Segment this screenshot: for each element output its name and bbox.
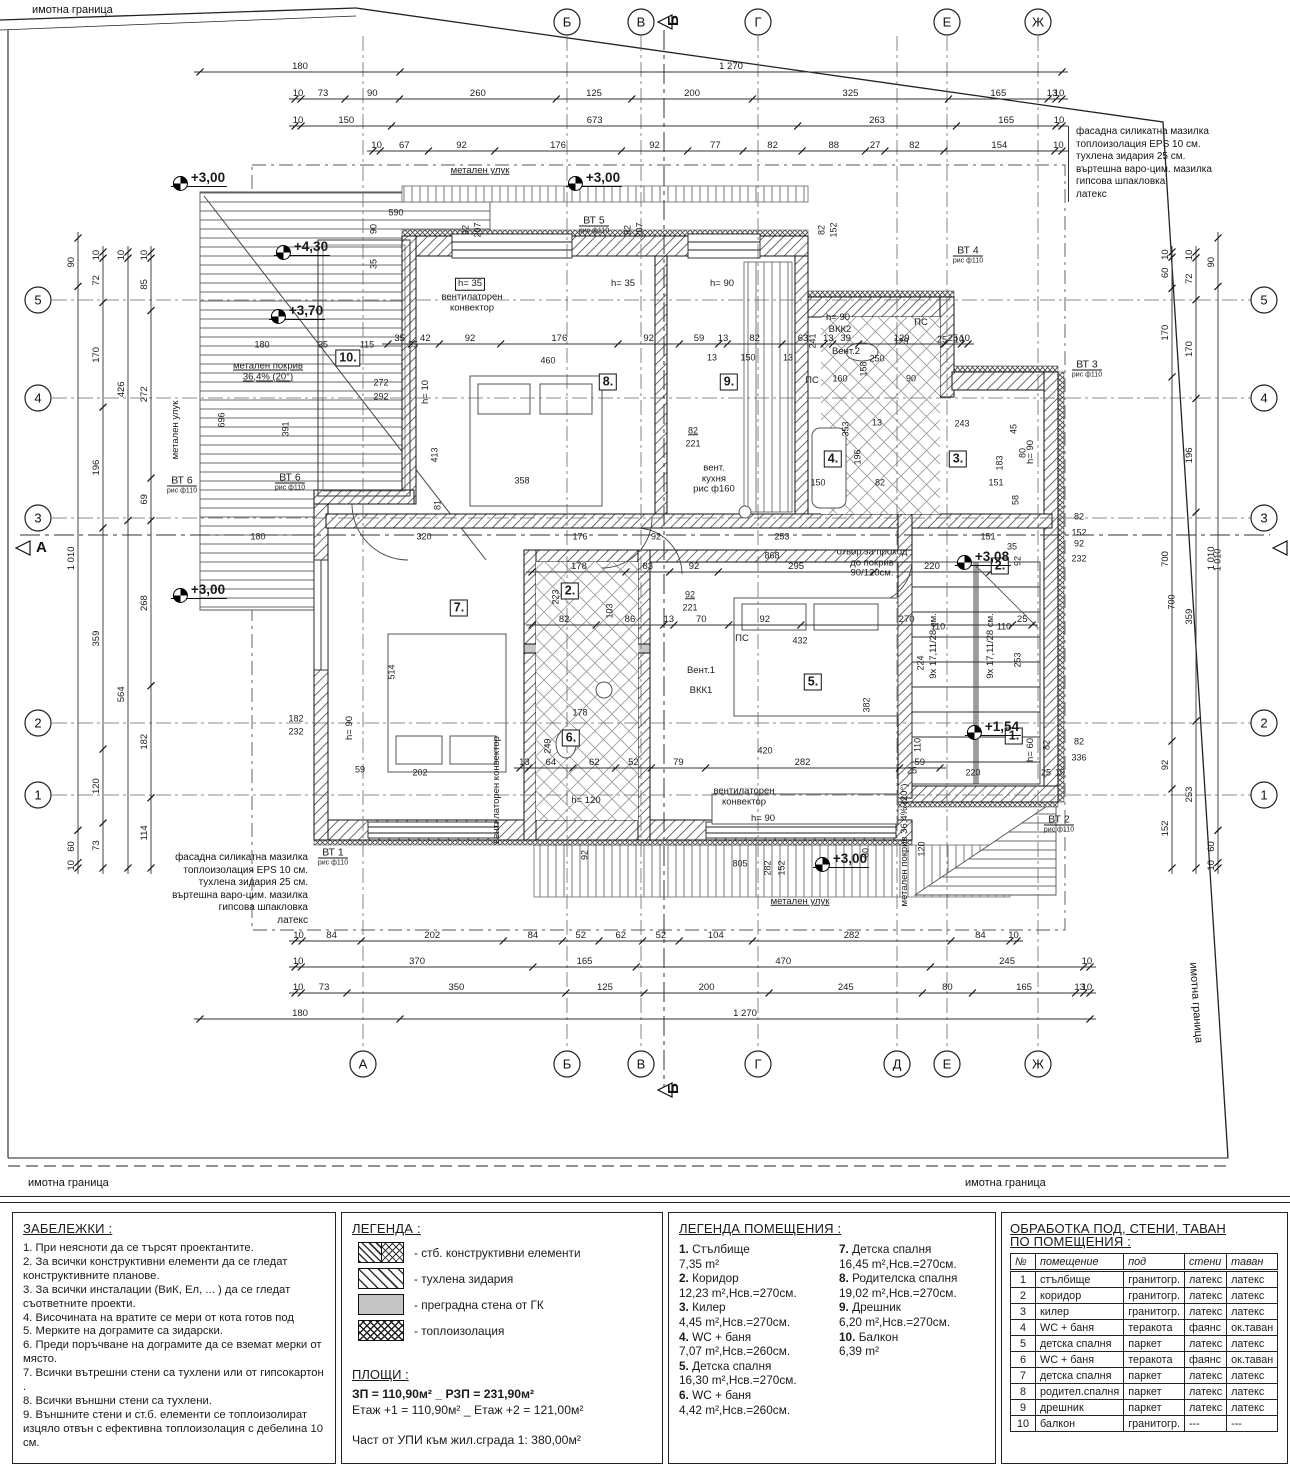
dim-value: 10 [293, 88, 304, 99]
axis-bubble-label: Г [754, 15, 761, 30]
dim-value: 154 [991, 140, 1007, 151]
axis-bubble-label: 2 [1260, 716, 1267, 731]
finish-table-cell: фаянс [1184, 1352, 1226, 1368]
note-item: 7. Всички вътрешни стени са тухлени или … [23, 1367, 325, 1395]
axis-bubble-label: В [637, 15, 646, 30]
dim-value: 270 [899, 614, 915, 625]
room-legend-detail: 4,42 m²,Нсв.=260см. [679, 1403, 825, 1418]
room-legend-title: ЛЕГЕНДА ПОМЕЩЕНИЯ : [679, 1221, 985, 1236]
finish-table-cell: паркет [1124, 1384, 1185, 1400]
dim-value: 60 [1206, 841, 1217, 852]
dim-value: 220 [924, 561, 940, 572]
dim-value: 165 [577, 956, 593, 967]
dim-value: 152 [1160, 821, 1171, 837]
dim-value: 92 [456, 140, 467, 151]
finish-table-cell: ок.таван [1227, 1320, 1278, 1336]
finish-table-cell: теракота [1124, 1320, 1185, 1336]
finish-table-cell: 10 [1011, 1416, 1036, 1432]
section-marker-triangle [1273, 541, 1287, 555]
dim-value: 104 [708, 930, 724, 941]
dim-value: 10 [293, 115, 304, 126]
room-legend-item: 7. Детска спалня16,45 m²,Нсв.=270см. [839, 1242, 985, 1271]
finish-table-cell: стълбище [1036, 1271, 1124, 1288]
dim-value: 88 [828, 140, 839, 151]
dim-value: 196 [1184, 447, 1195, 463]
finish-table-cell: латекс [1227, 1288, 1278, 1304]
legend-item: - преградна стена от ГК [358, 1294, 652, 1315]
dim-value: 79 [673, 757, 684, 768]
dim-value: 350 [448, 982, 464, 993]
insul-swatch-icon [358, 1320, 404, 1341]
room-legend-detail: 12,23 m²,Нсв.=270см. [679, 1286, 825, 1301]
finish-table-cell: 4 [1011, 1320, 1036, 1336]
dim-value: 150 [338, 115, 354, 126]
dim-value: 564 [116, 686, 127, 702]
finish-table-cell: 3 [1011, 1304, 1036, 1320]
dim-value: 13 [718, 333, 729, 344]
dim-value: 10 [1054, 88, 1065, 99]
axis-bubble-label: 2 [34, 716, 41, 731]
legend-item-label: - топлоизолация [414, 1324, 504, 1338]
room-legend-col1: 1. Стълбище7,35 m²2. Коридор12,23 m²,Нсв… [679, 1242, 825, 1417]
dim-value: 178 [571, 561, 587, 572]
axis-bubble-label: Д [893, 1057, 902, 1072]
gutter-strip-top [402, 186, 808, 202]
dim-value: 10 [293, 930, 304, 941]
dim-value: 180 [292, 1008, 308, 1019]
room-legend-detail: 16,30 m²,Нсв.=270см. [679, 1373, 825, 1388]
finish-table-cell: ок.таван [1227, 1352, 1278, 1368]
areas-line3: Част от УПИ към жил.сграда 1: 380,00м² [352, 1432, 652, 1448]
finish-table-cell: латекс [1227, 1400, 1278, 1416]
finish-table-cell: 6 [1011, 1352, 1036, 1368]
areas-line1: ЗП = 110,90м² _ РЗП = 231,90м² [352, 1386, 652, 1402]
axis-bubble-label: Ж [1032, 1057, 1044, 1072]
axis-bubble-label: Г [754, 1057, 761, 1072]
dim-value: 80 [942, 982, 953, 993]
axis-bubble-label: 5 [34, 293, 41, 308]
room-legend-detail: 16,45 m²,Нсв.=270см. [839, 1257, 985, 1272]
notes-title: ЗАБЕЛЕЖКИ : [23, 1221, 325, 1236]
dim-value: 63 [798, 333, 809, 344]
room-legend-item: 8. Родителска спалня19,02 m²,Нсв.=270см. [839, 1271, 985, 1300]
finish-table-header: под [1124, 1254, 1185, 1271]
finish-table-cell: коридор [1036, 1288, 1124, 1304]
floor-plan-svg: БВГЕЖАБВГДЕЖ5432154321ББАА1801 270107390… [0, 0, 1290, 1205]
dim-value: 13 [823, 333, 834, 344]
dim-value: 282 [795, 757, 811, 768]
dim-value: 10 [959, 333, 970, 344]
dim-value: 245 [999, 956, 1015, 967]
dim-value: 295 [788, 561, 804, 572]
dim-value: 10 [293, 956, 304, 967]
axis-bubble-label: 4 [1260, 391, 1267, 406]
finish-table-row: 1стълбищегранитогр.латекслатекс [1011, 1271, 1278, 1288]
dim-value: 92 [643, 333, 654, 344]
dim-value: 90 [367, 88, 378, 99]
room-legend-item: 1. Стълбище7,35 m² [679, 1242, 825, 1271]
finish-table-row: 2коридоргранитогр.латекслатекс [1011, 1288, 1278, 1304]
axis-bubble-label: 5 [1260, 293, 1267, 308]
finish-table-cell: детска спалня [1036, 1368, 1124, 1384]
dim-value: 27 [870, 140, 881, 151]
finish-table-header: стени [1184, 1254, 1226, 1271]
finish-table-row: 7детска спалняпаркетлатекслатекс [1011, 1368, 1278, 1384]
dim-value: 176 [550, 140, 566, 151]
staircase [912, 562, 1040, 784]
dim-value: 359 [1184, 609, 1195, 625]
dim-value: 182 [139, 734, 150, 750]
dim-value: 60 [66, 841, 77, 852]
finish-table-row: 3килергранитогр.латекслатекс [1011, 1304, 1278, 1320]
notes-panel: ЗАБЕЛЕЖКИ : 1. При неясноти да се търсят… [12, 1212, 336, 1464]
dim-value: 10 [1082, 956, 1093, 967]
dim-value: 83 [643, 561, 654, 572]
finish-table-cell: латекс [1184, 1304, 1226, 1320]
finish-table-cell: латекс [1184, 1288, 1226, 1304]
room-legend-col2: 7. Детска спалня16,45 m²,Нсв.=270см.8. Р… [839, 1242, 985, 1417]
room-legend-item: 10. Балкон6,39 m² [839, 1330, 985, 1359]
finish-table-cell: латекс [1227, 1384, 1278, 1400]
finish-table: №помещениеподстенитаван1стълбищегранитог… [1010, 1253, 1278, 1432]
legend-list: - стб. конструктивни елементи- тухлена з… [352, 1242, 652, 1341]
dim-value: 52 [628, 757, 639, 768]
dim-value: 245 [838, 982, 854, 993]
note-item: 9. Външните стени и ст.б. елементи се то… [23, 1409, 325, 1451]
dim-value: 62 [616, 930, 627, 941]
dim-value: 114 [139, 825, 150, 840]
room-legend-panel: ЛЕГЕНДА ПОМЕЩЕНИЯ : 1. Стълбище7,35 m²2.… [668, 1212, 996, 1464]
finish-table-row: 10балконгранитогр.------ [1011, 1416, 1278, 1432]
notes-list: 1. При неясноти да се търсят проектантит… [23, 1242, 325, 1451]
dim-value: 92 [465, 333, 476, 344]
finish-table-cell: фаянс [1184, 1320, 1226, 1336]
dim-value: 253 [1184, 787, 1195, 803]
finish-table-cell: латекс [1184, 1336, 1226, 1352]
dim-value: 170 [1184, 341, 1195, 357]
finish-table-cell: гранитогр. [1124, 1416, 1185, 1432]
finish-table-cell: 9 [1011, 1400, 1036, 1416]
dim-value: 92 [1160, 760, 1171, 771]
room-legend-detail: 6,20 m²,Нсв.=270см. [839, 1315, 985, 1330]
dim-value: 77 [710, 140, 721, 151]
room-legend-item: 6. WC + баня4,42 m²,Нсв.=260см. [679, 1388, 825, 1417]
dim-value: 1 270 [719, 61, 743, 72]
dim-value: 60 [1160, 268, 1171, 279]
axis-bubble-label: 1 [34, 788, 41, 803]
dim-value: 10 [1184, 250, 1195, 261]
dim-value: 165 [990, 88, 1006, 99]
dim-value: 10 [1160, 249, 1171, 260]
dim-value: 73 [319, 982, 330, 993]
dim-value: 359 [91, 631, 102, 647]
finish-table-cell: латекс [1184, 1368, 1226, 1384]
dim-value: 272 [139, 386, 150, 402]
gk-swatch-icon [358, 1294, 404, 1315]
finish-table-cell: родител.спалня [1036, 1384, 1124, 1400]
axis-bubble-label: Е [943, 15, 952, 30]
note-item: 8. Всички външни стени са тухлени. [23, 1395, 325, 1409]
finish-table-cell: 7 [1011, 1368, 1036, 1384]
finish-table-cell: 1 [1011, 1271, 1036, 1288]
dim-value: 70 [696, 614, 707, 625]
finish-table-header: № [1011, 1254, 1036, 1271]
dim-value: 200 [684, 88, 700, 99]
finish-table-cell: латекс [1184, 1384, 1226, 1400]
finish-table-cell: латекс [1184, 1400, 1226, 1416]
axis-bubble-label: 4 [34, 391, 41, 406]
brick-swatch-icon [358, 1268, 404, 1289]
finish-table-cell: латекс [1184, 1271, 1226, 1288]
dim-value: 35 [394, 333, 405, 344]
dim-value: 82 [749, 333, 760, 344]
dim-value: 67 [399, 140, 410, 151]
room-legend-detail: 6,39 m² [839, 1344, 985, 1359]
dim-value: 82 [559, 614, 570, 625]
wardrobe [744, 262, 792, 512]
axis-bubble-label: Е [943, 1057, 952, 1072]
dim-value: 10 [293, 982, 304, 993]
dim-value: 10 [1082, 982, 1093, 993]
legend-item-label: - тухлена зидария [414, 1272, 513, 1286]
finish-table-row: 4WC + банятеракотафаянсок.таван [1011, 1320, 1278, 1336]
section-marker-triangle [16, 541, 30, 555]
dim-value: 282 [844, 930, 860, 941]
finish-table-row: 6WC + банятеракотафаянсок.таван [1011, 1352, 1278, 1368]
dim-value: 84 [975, 930, 986, 941]
legend-item: - стб. конструктивни елементи [358, 1242, 652, 1263]
dim-value: 42 [420, 333, 431, 344]
room-legend-detail: 7,07 m²,Нсв.=260см. [679, 1344, 825, 1359]
room-legend-detail: 4,45 m²,Нсв.=270см. [679, 1315, 825, 1330]
dim-value: 62 [589, 757, 600, 768]
finish-table-cell: детска спалня [1036, 1336, 1124, 1352]
finish-table-cell: 8 [1011, 1384, 1036, 1400]
finish-table-cell: 5 [1011, 1336, 1036, 1352]
dim-value: 10 [1053, 140, 1064, 151]
axis-bubble-label: 1 [1260, 788, 1267, 803]
dim-value: 25 [1017, 614, 1028, 625]
room-legend-item: 3. Килер4,45 m²,Нсв.=270см. [679, 1300, 825, 1329]
dim-value: 700 [1160, 551, 1171, 567]
dim-value: 202 [424, 930, 440, 941]
dim-value: 10 [371, 140, 382, 151]
dim-value: 10 [1054, 115, 1065, 126]
dim-value: 170 [1160, 325, 1171, 341]
legend-item: - тухлена зидария [358, 1268, 652, 1289]
dim-value: 10 [139, 250, 150, 261]
dim-value: 196 [91, 460, 102, 476]
dim-value: 10 [1206, 860, 1217, 871]
finish-table-cell: паркет [1124, 1400, 1185, 1416]
finish-table-cell: балкон [1036, 1416, 1124, 1432]
dim-value: 673 [587, 115, 603, 126]
finish-table-cell: --- [1184, 1416, 1226, 1432]
finish-table-cell: гранитогр. [1124, 1288, 1185, 1304]
dim-value: 92 [689, 561, 700, 572]
finish-table-cell: гранитогр. [1124, 1304, 1185, 1320]
finish-table-cell: латекс [1227, 1271, 1278, 1288]
axis-bubble-label: Б [563, 1057, 572, 1072]
areas-line2: Етаж +1 = 110,90м² _ Етаж +2 = 121,00м² [352, 1402, 652, 1418]
dim-value: 73 [318, 88, 329, 99]
dim-value: 92 [649, 140, 660, 151]
finish-table-cell: килер [1036, 1304, 1124, 1320]
note-item: 4. Височината на вратите се мери от кота… [23, 1312, 325, 1326]
finish-table-cell: дрешник [1036, 1400, 1124, 1416]
dim-value: 72 [1184, 273, 1195, 284]
dim-value: 92 [759, 614, 770, 625]
note-item: 5. Мерките на дограмите са зидарски. [23, 1325, 325, 1339]
finish-table-row: 5детска спалняпаркетлатекслатекс [1011, 1336, 1278, 1352]
room-legend-detail: 19,02 m²,Нсв.=270см. [839, 1286, 985, 1301]
dim-value: 176 [551, 333, 567, 344]
dim-value: 69 [139, 494, 150, 505]
legend-title: ЛЕГЕНДА : [352, 1221, 652, 1236]
finish-table-cell: паркет [1124, 1368, 1185, 1384]
dim-value: 268 [139, 595, 150, 611]
note-item: 3. За всички инсталации (ВиК, Ел, ... ) … [23, 1284, 325, 1312]
areas-block: ПЛОЩИ : ЗП = 110,90м² _ РЗП = 231,90м² Е… [352, 1367, 652, 1448]
dim-value: 180 [292, 61, 308, 72]
section-marker-label: А [36, 539, 47, 556]
axis-bubble-label: Б [563, 15, 572, 30]
areas-title: ПЛОЩИ : [352, 1367, 652, 1383]
finish-table-panel: ОБРАБОТКА ПОД, СТЕНИ, ТАВАН ПО ПОМЕЩЕНИЯ… [1001, 1212, 1288, 1464]
room-legend-item: 9. Дрешник6,20 m²,Нсв.=270см. [839, 1300, 985, 1329]
bottom-panels: ЗАБЕЛЕЖКИ : 1. При неясноти да се търсят… [0, 1206, 1290, 1474]
room-legend-item: 4. WC + баня7,07 m²,Нсв.=260см. [679, 1330, 825, 1359]
finish-table-row: 9дрешникпаркетлатекслатекс [1011, 1400, 1278, 1416]
finish-table-title2: ПО ПОМЕЩЕНИЯ : [1010, 1234, 1279, 1249]
room-legend-item: 2. Коридор12,23 m²,Нсв.=270см. [679, 1271, 825, 1300]
axis-bubble-label: 3 [1260, 511, 1267, 526]
dim-value: 90 [66, 257, 77, 268]
dim-value: 1 010 [1206, 546, 1217, 570]
finish-table-cell: теракота [1124, 1352, 1185, 1368]
note-item: 6. Преди поръчване на дограмите да се вз… [23, 1339, 325, 1367]
legend-panel: ЛЕГЕНДА : - стб. конструктивни елементи-… [341, 1212, 663, 1464]
finish-table-cell: паркет [1124, 1336, 1185, 1352]
dim-value: 82 [767, 140, 778, 151]
dim-value: 84 [326, 930, 337, 941]
dim-value: 125 [586, 88, 602, 99]
dim-value: 165 [1016, 982, 1032, 993]
room-legend-item: 5. Детска спалня16,30 m²,Нсв.=270см. [679, 1359, 825, 1388]
finish-table-header: таван [1227, 1254, 1278, 1271]
dim-value: 260 [470, 88, 486, 99]
dim-value: 25 [948, 333, 959, 344]
dim-value: 59 [914, 757, 925, 768]
finish-table-cell: WC + баня [1036, 1320, 1124, 1336]
concrete-swatch-icon [358, 1242, 404, 1263]
axis-bubble-label: А [359, 1057, 368, 1072]
dim-value: 200 [699, 982, 715, 993]
dim-value: 90 [1206, 257, 1217, 268]
axis-bubble-label: В [637, 1057, 646, 1072]
dim-value: 125 [597, 982, 613, 993]
dim-value: 1 010 [66, 546, 77, 570]
note-item: 1. При неясноти да се търсят проектантит… [23, 1242, 325, 1256]
dim-value: 13 [519, 757, 530, 768]
dim-value: 10 [116, 250, 127, 261]
dim-value: 85 [139, 279, 150, 290]
axis-bubble-label: Ж [1032, 15, 1044, 30]
section-marker-label: Б [665, 15, 682, 26]
finish-table-cell: латекс [1227, 1368, 1278, 1384]
dim-value: 39 [840, 333, 851, 344]
finish-table-cell: латекс [1227, 1336, 1278, 1352]
section-marker-label: Б [665, 1083, 682, 1094]
dim-value: 120 [91, 778, 102, 794]
wc-corridor-floor-tiles [536, 562, 638, 820]
finish-table-header-row: №помещениеподстенитаван [1011, 1254, 1278, 1271]
dim-value: 426 [116, 381, 127, 397]
dim-value: 52 [575, 930, 586, 941]
finish-table-cell: --- [1227, 1416, 1278, 1432]
dim-value: 165 [998, 115, 1014, 126]
dim-value: 10 [66, 860, 77, 871]
dim-value: 72 [91, 275, 102, 286]
dim-value: 263 [869, 115, 885, 126]
finish-table-header: помещение [1036, 1254, 1124, 1271]
dim-value: 52 [656, 930, 667, 941]
finish-table-cell: гранитогр. [1124, 1271, 1185, 1288]
dim-value: 73 [91, 840, 102, 851]
finish-table-cell: WC + баня [1036, 1352, 1124, 1368]
dim-value: 64 [546, 757, 557, 768]
dim-value: 370 [409, 956, 425, 967]
dim-value: 59 [694, 333, 705, 344]
legend-item-label: - преградна стена от ГК [414, 1298, 544, 1312]
dim-value: 10 [1008, 930, 1019, 941]
drawing-sheet: { "boundary": { "label": "имотна граница… [0, 0, 1290, 1474]
dim-value: 13 [663, 614, 674, 625]
room-legend-detail: 7,35 m² [679, 1257, 825, 1272]
floor-plan-area: БВГЕЖАБВГДЕЖ5432154321ББАА1801 270107390… [0, 0, 1290, 1205]
axis-bubble-label: 3 [34, 511, 41, 526]
legend-item: - топлоизолация [358, 1320, 652, 1341]
dim-value: 129 [894, 333, 910, 344]
dim-value: 170 [91, 347, 102, 363]
note-item: 2. За всички конструктивни елементи да с… [23, 1256, 325, 1284]
finish-table-cell: латекс [1227, 1304, 1278, 1320]
dim-value: 10 [91, 250, 102, 261]
dim-value: 86 [625, 614, 636, 625]
dim-value: 470 [775, 956, 791, 967]
legend-item-label: - стб. конструктивни елементи [414, 1246, 581, 1260]
finish-table-cell: 2 [1011, 1288, 1036, 1304]
finish-table-row: 8родител.спалняпаркетлатекслатекс [1011, 1384, 1278, 1400]
dim-value: 84 [528, 930, 539, 941]
dim-value: 325 [843, 88, 859, 99]
dim-value: 1 270 [733, 1008, 757, 1019]
dim-value: 82 [909, 140, 920, 151]
